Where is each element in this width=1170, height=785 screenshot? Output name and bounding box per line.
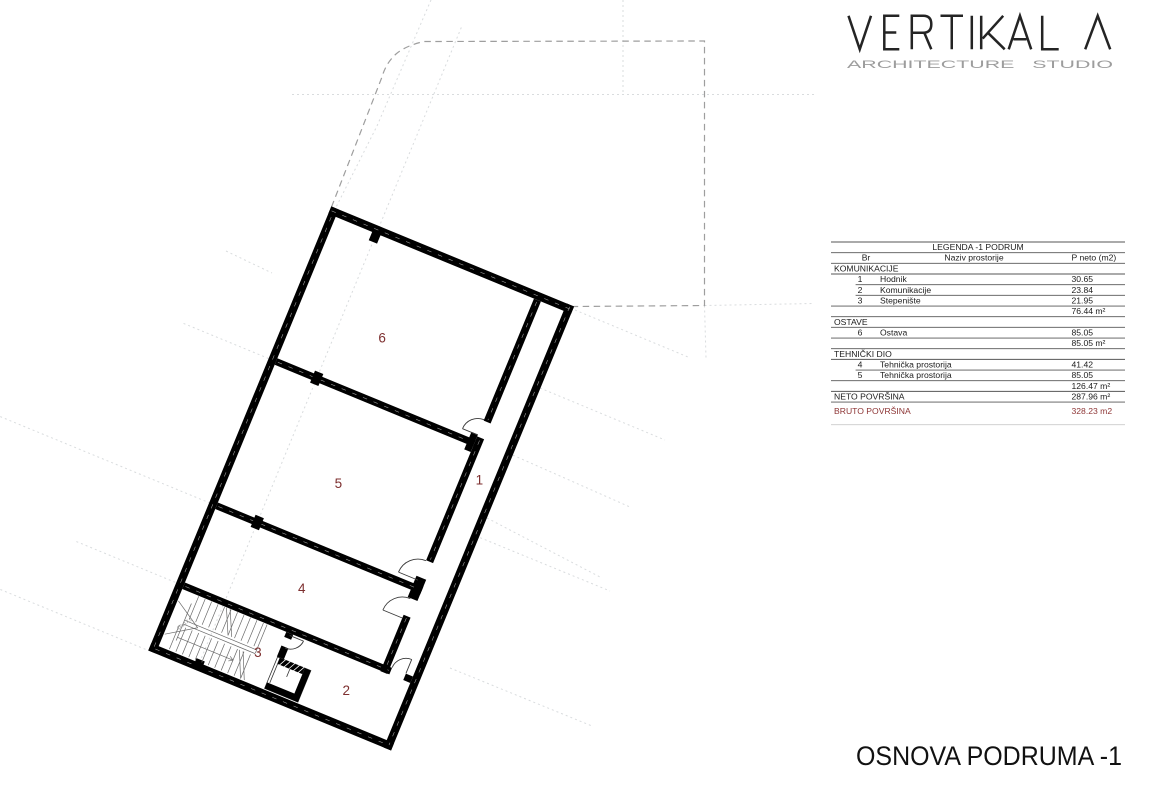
svg-text:Komunikacije: Komunikacije: [880, 285, 931, 295]
svg-text:Br: Br: [862, 253, 871, 263]
svg-text:OSTAVE: OSTAVE: [834, 317, 868, 327]
svg-text:LEGENDA -1 PODRUM: LEGENDA -1 PODRUM: [932, 242, 1023, 252]
svg-text:6: 6: [378, 331, 386, 346]
svg-text:Tehnička prostorija: Tehnička prostorija: [880, 370, 952, 380]
svg-text:30.65: 30.65: [1072, 274, 1094, 284]
svg-text:287.96 m²: 287.96 m²: [1072, 391, 1111, 401]
svg-text:4: 4: [298, 581, 306, 596]
svg-text:3: 3: [858, 295, 863, 305]
svg-text:BRUTO POVRŠINA: BRUTO POVRŠINA: [834, 406, 911, 416]
svg-text:OSNOVA PODRUMA -1: OSNOVA PODRUMA -1: [856, 741, 1122, 771]
svg-text:85.05: 85.05: [1072, 370, 1094, 380]
svg-text:Stepenište: Stepenište: [880, 295, 921, 305]
svg-text:1: 1: [858, 274, 863, 284]
svg-text:85.05: 85.05: [1072, 327, 1094, 337]
svg-text:2: 2: [343, 683, 351, 698]
svg-text:ARCHITECTURE STUDIO: ARCHITECTURE STUDIO: [847, 59, 1114, 71]
svg-text:6: 6: [858, 327, 863, 337]
svg-text:Tehnička prostorija: Tehnička prostorija: [880, 359, 952, 369]
svg-text:P neto (m2): P neto (m2): [1072, 253, 1117, 263]
svg-text:TEHNIČKI DIO: TEHNIČKI DIO: [834, 349, 892, 359]
svg-text:126.47 m²: 126.47 m²: [1072, 381, 1111, 391]
svg-text:Hodnik: Hodnik: [880, 274, 907, 284]
svg-text:KOMUNIKACIJE: KOMUNIKACIJE: [834, 263, 899, 273]
svg-text:76.44 m²: 76.44 m²: [1072, 306, 1106, 316]
svg-text:2: 2: [858, 285, 863, 295]
svg-text:5: 5: [858, 370, 863, 380]
svg-text:3: 3: [254, 645, 262, 660]
svg-text:4: 4: [858, 359, 863, 369]
svg-text:Ostava: Ostava: [880, 327, 907, 337]
svg-text:328.23 m2: 328.23 m2: [1072, 406, 1113, 416]
svg-text:5: 5: [335, 476, 343, 491]
svg-text:NETO POVRŠINA: NETO POVRŠINA: [834, 391, 905, 401]
svg-text:23.84: 23.84: [1072, 285, 1094, 295]
svg-text:85.05 m²: 85.05 m²: [1072, 338, 1106, 348]
svg-text:41.42: 41.42: [1072, 359, 1094, 369]
svg-text:Naziv prostorije: Naziv prostorije: [944, 253, 1003, 263]
svg-text:21.95: 21.95: [1072, 295, 1094, 305]
svg-text:1: 1: [476, 473, 484, 488]
